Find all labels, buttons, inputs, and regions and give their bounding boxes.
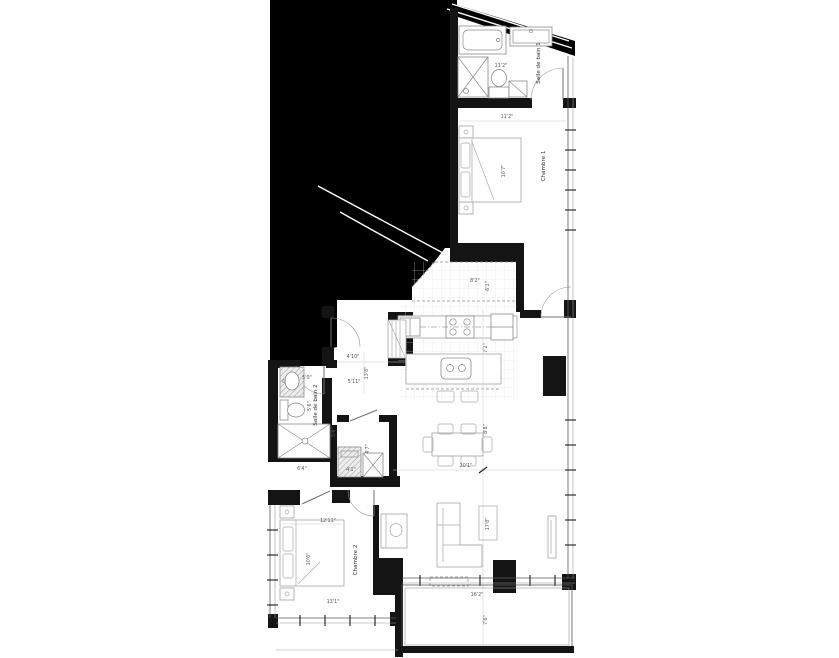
dim-dining-zone: 8'8" <box>483 424 489 434</box>
island-sink-icon <box>441 358 471 379</box>
dim-living-width: 17'8" <box>485 518 491 531</box>
dim-great-room-length: 20'1" <box>460 463 473 469</box>
room-label-bedroom2: Chambre 2 <box>353 545 359 576</box>
tv-console-icon <box>548 516 556 558</box>
dim-entry-depth: 5'11" <box>348 379 361 385</box>
dim-bedroom1-depth: 10'7" <box>501 165 507 178</box>
dim-balcony-width: 16'2" <box>471 592 484 598</box>
dim-hall-width: 6'4" <box>297 466 307 472</box>
desk-icon <box>381 514 407 548</box>
dim-bedroom2-width: 12'11" <box>320 518 336 524</box>
floorplan-svg: 11'2" Salle de bain 1 11'2" 10'7" Chambr… <box>0 0 839 658</box>
dim-kitchen-nook-depth: 6'2" <box>485 281 491 291</box>
dim-corridor: 13'8" <box>364 367 370 380</box>
dim-bath1-width: 11'2" <box>495 63 508 69</box>
room-label-bath2: Salle de bain 2 <box>313 384 319 426</box>
dim-bedroom2-length: 13'1" <box>327 599 340 605</box>
shower-icon <box>458 57 488 97</box>
room-label-bedroom1: Chambre 1 <box>541 150 547 181</box>
column <box>543 356 566 396</box>
dim-kitchen-nook-width: 8'2" <box>470 278 480 284</box>
dim-entry-width: 4'10" <box>347 354 360 360</box>
floorplan-canvas: 11'2" Salle de bain 1 11'2" 10'7" Chambr… <box>0 0 839 658</box>
cabinet-icon <box>509 81 527 97</box>
room-label-bath1: Salle de bain 1 <box>536 42 542 84</box>
dim-kitchen-zone: 7'2" <box>483 343 489 353</box>
dim-balcony-depth: 7'6" <box>483 615 489 625</box>
bed-icon <box>459 126 521 214</box>
dim-closet-depth: 5'6" <box>331 427 337 437</box>
vanity-sink-icon <box>280 367 304 397</box>
entry-closet <box>388 320 406 358</box>
dim-bath2-width: 5'0" <box>302 375 312 381</box>
dim-laundry-width: 4'1" <box>346 467 356 473</box>
dim-bedroom2-depth: 10'6" <box>306 553 312 566</box>
dim-bedroom1-width: 11'2" <box>501 114 514 120</box>
shower-icon <box>278 424 330 458</box>
fridge-icon <box>491 314 513 340</box>
dryer-icon <box>363 453 383 477</box>
kitchen-nook: 8'2" 6'2" <box>412 262 516 302</box>
dim-laundry-depth: 4'7" <box>365 444 371 454</box>
